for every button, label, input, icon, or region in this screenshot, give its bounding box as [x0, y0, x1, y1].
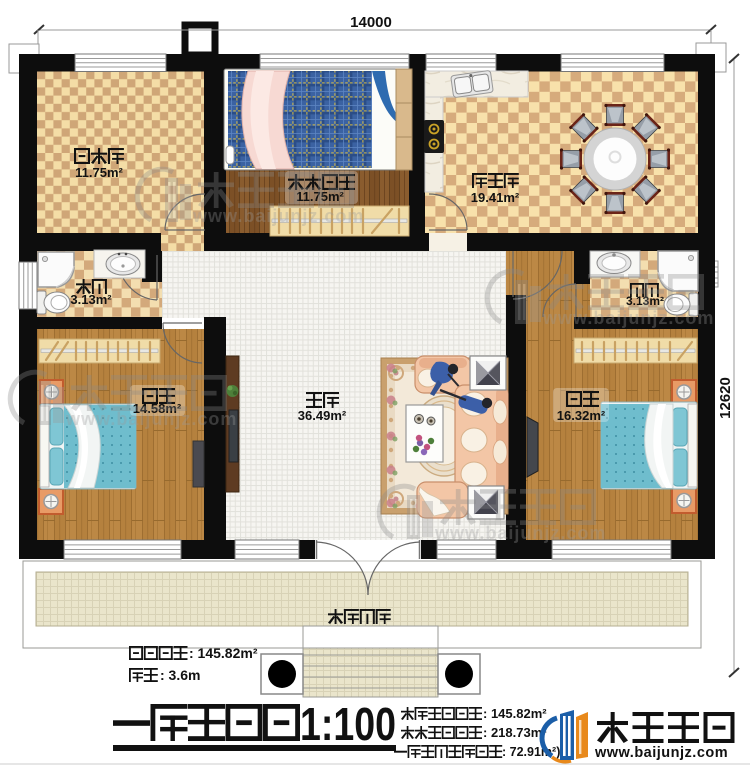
svg-text:1:100: 1:100: [300, 698, 396, 750]
svg-text:16.32m²: 16.32m²: [557, 408, 606, 423]
svg-text:www.baijunjz.com: www.baijunjz.com: [542, 308, 714, 328]
svg-text:www.baijunjz.com: www.baijunjz.com: [594, 745, 728, 761]
svg-text:: 3.6m: : 3.6m: [160, 667, 200, 683]
svg-text:: 145.82m²: : 145.82m²: [189, 645, 258, 661]
svg-text:www.baijunjz.com: www.baijunjz.com: [192, 206, 364, 226]
svg-text:3.13m²: 3.13m²: [70, 292, 112, 307]
svg-text:36.49m²: 36.49m²: [298, 408, 347, 423]
svg-text:14000: 14000: [350, 14, 392, 31]
svg-text:12620: 12620: [717, 377, 734, 419]
svg-text:www.baijunjz.com: www.baijunjz.com: [65, 409, 237, 429]
svg-text:19.41m²: 19.41m²: [471, 190, 520, 205]
svg-text:: 72.91m²): : 72.91m²): [502, 745, 560, 759]
svg-text:: 145.82m²: : 145.82m²: [483, 706, 547, 721]
svg-text:www.baijunjz.com: www.baijunjz.com: [434, 523, 606, 543]
svg-text:11.75m²: 11.75m²: [75, 165, 123, 180]
svg-text:: 218.73m²: : 218.73m²: [483, 725, 547, 740]
